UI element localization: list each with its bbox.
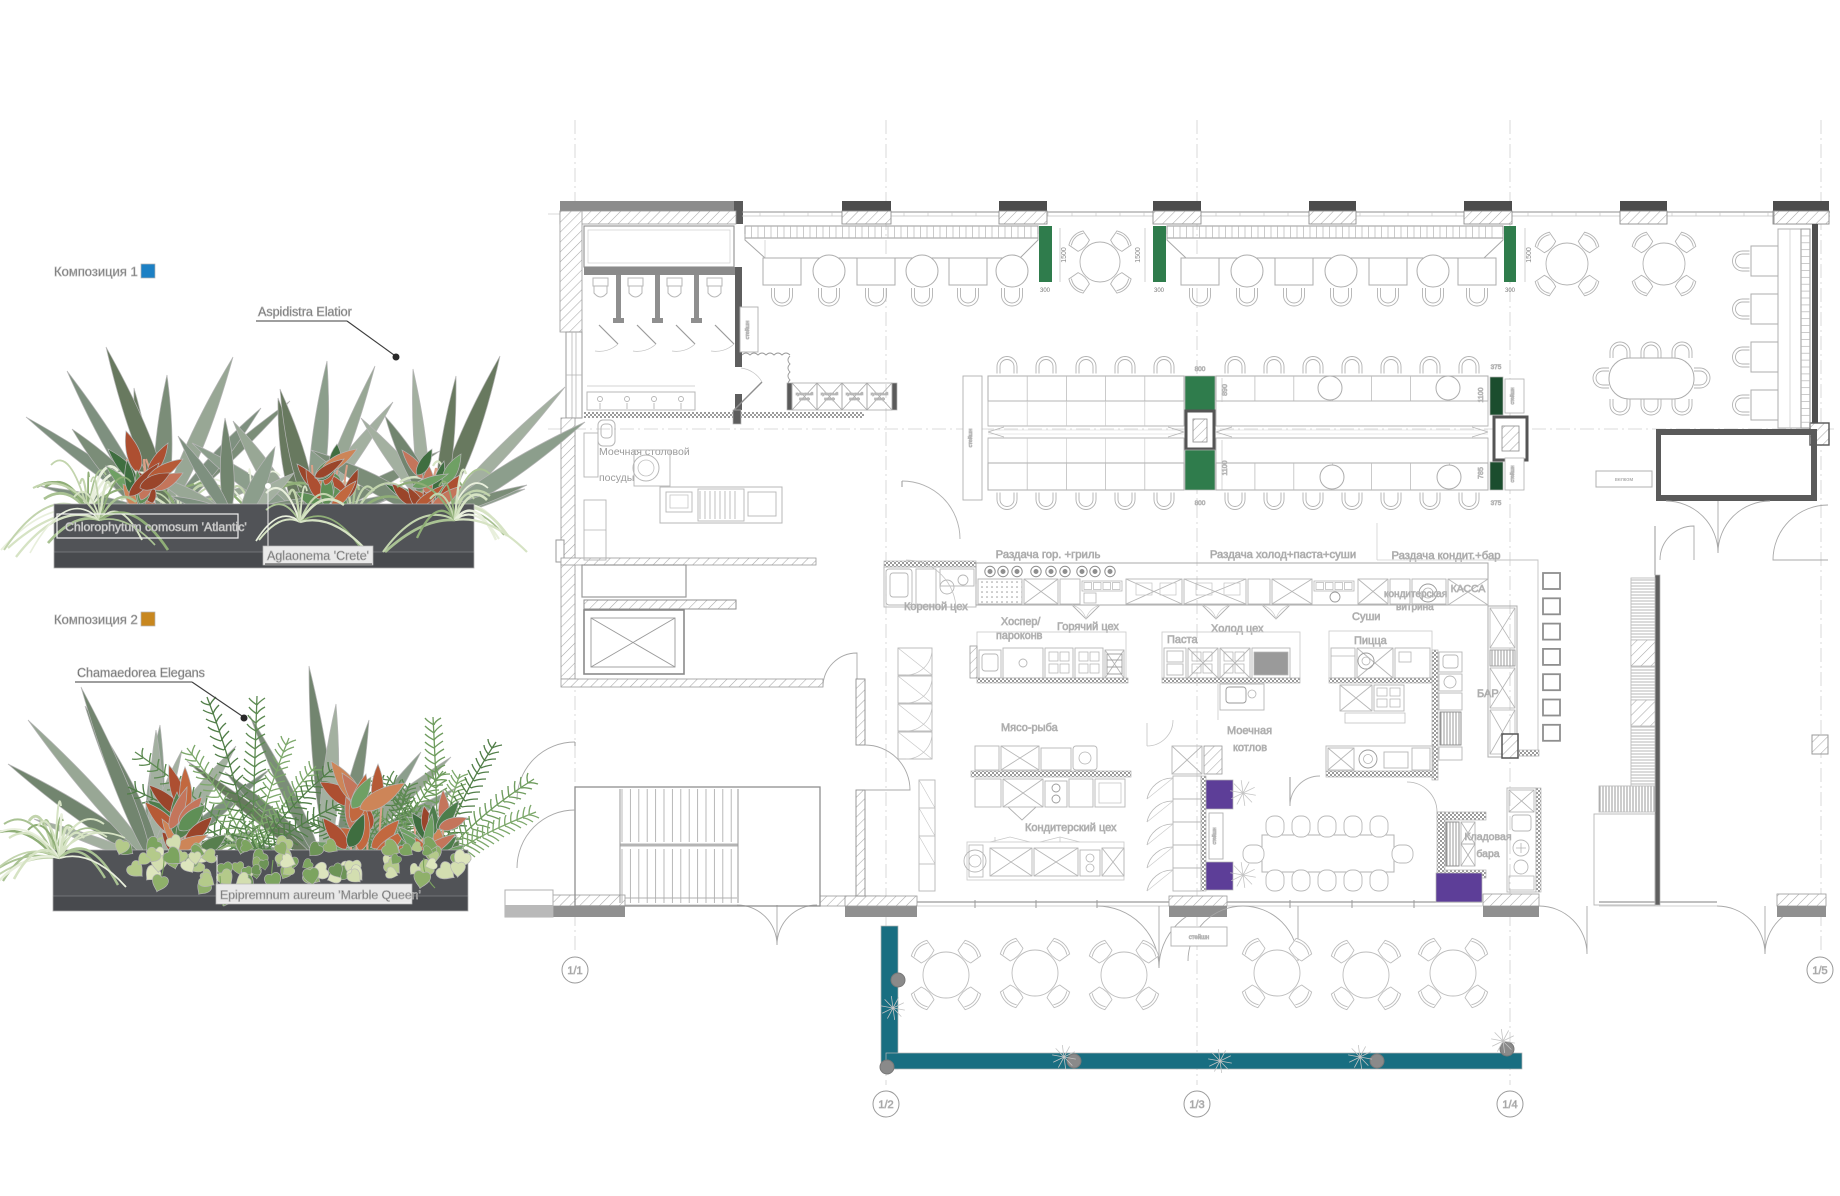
svg-text:стейшн: стейшн <box>1211 827 1218 844</box>
svg-text:1/2: 1/2 <box>878 1099 893 1111</box>
svg-text:Мясо-рыба: Мясо-рыба <box>1001 722 1059 734</box>
svg-text:300: 300 <box>1040 288 1051 294</box>
svg-text:Горячий цех: Горячий цех <box>1057 621 1119 633</box>
svg-text:Холод цех: Холод цех <box>1211 623 1264 635</box>
svg-text:1100: 1100 <box>1478 387 1485 402</box>
svg-text:890: 890 <box>1222 384 1229 396</box>
svg-text:шкаф: шкаф <box>799 396 810 401</box>
svg-text:300: 300 <box>1154 288 1165 294</box>
svg-text:1/3: 1/3 <box>1189 1099 1204 1111</box>
svg-text:велком: велком <box>1615 477 1633 483</box>
svg-text:Композиция 1: Композиция 1 <box>54 264 138 279</box>
svg-text:Кореной цех: Кореной цех <box>904 601 968 613</box>
svg-text:Кондитерский цех: Кондитерский цех <box>1025 822 1117 834</box>
svg-text:шкаф: шкаф <box>824 396 835 401</box>
svg-text:1500: 1500 <box>1061 247 1068 263</box>
svg-text:1100: 1100 <box>1222 460 1229 475</box>
svg-text:стейшн: стейшн <box>744 321 751 340</box>
svg-text:посуды: посуды <box>599 472 634 484</box>
svg-text:Chlorophytum comosum 'Atlantic: Chlorophytum comosum 'Atlantic' <box>65 520 247 534</box>
svg-text:1/1: 1/1 <box>567 965 582 977</box>
svg-text:Паста: Паста <box>1167 634 1198 646</box>
svg-text:бара: бара <box>1476 848 1499 860</box>
svg-text:Моечная: Моечная <box>1227 725 1272 737</box>
svg-text:Пицца: Пицца <box>1354 635 1388 647</box>
svg-text:шкаф: шкаф <box>874 396 885 401</box>
svg-text:375: 375 <box>1491 500 1502 507</box>
svg-text:Кладовая: Кладовая <box>1464 831 1511 843</box>
svg-text:шкаф: шкаф <box>849 396 860 401</box>
svg-text:300: 300 <box>1505 288 1516 294</box>
svg-text:Раздача гор. +гриль: Раздача гор. +гриль <box>996 549 1101 561</box>
svg-text:Композиция 2: Композиция 2 <box>54 612 138 627</box>
svg-text:Chamaedorea Elegans: Chamaedorea Elegans <box>77 666 205 680</box>
svg-text:375: 375 <box>1491 364 1502 371</box>
svg-text:стейшн: стейшн <box>1509 465 1516 482</box>
svg-text:Хоспер/: Хоспер/ <box>1001 616 1040 628</box>
svg-text:1/4: 1/4 <box>1502 1099 1517 1111</box>
svg-text:1/5: 1/5 <box>1812 965 1827 977</box>
svg-text:Epipremnum aureum 'Marble Quee: Epipremnum aureum 'Marble Queen' <box>220 888 421 902</box>
svg-text:стейшн: стейшн <box>1509 387 1516 404</box>
svg-text:Aglaonema 'Crete': Aglaonema 'Crete' <box>267 549 369 563</box>
svg-text:Раздача холод+паста+суши: Раздача холод+паста+суши <box>1210 549 1356 561</box>
svg-text:Моечная столовой: Моечная столовой <box>599 446 690 458</box>
svg-text:стейшн: стейшн <box>967 429 974 448</box>
svg-text:Суши: Суши <box>1352 611 1380 623</box>
svg-text:стейшн: стейшн <box>1189 934 1210 941</box>
svg-text:1500: 1500 <box>1135 247 1142 263</box>
svg-text:КАССА: КАССА <box>1451 583 1486 595</box>
svg-text:800: 800 <box>1195 366 1206 373</box>
svg-text:785: 785 <box>1478 467 1485 479</box>
svg-text:котлов: котлов <box>1233 742 1267 754</box>
svg-text:кондитерская: кондитерская <box>1384 589 1447 600</box>
svg-text:Aspidistra Elatior: Aspidistra Elatior <box>258 305 352 319</box>
svg-text:800: 800 <box>1195 500 1206 507</box>
svg-text:1500: 1500 <box>1526 247 1533 263</box>
svg-text:витрина: витрина <box>1396 602 1434 613</box>
